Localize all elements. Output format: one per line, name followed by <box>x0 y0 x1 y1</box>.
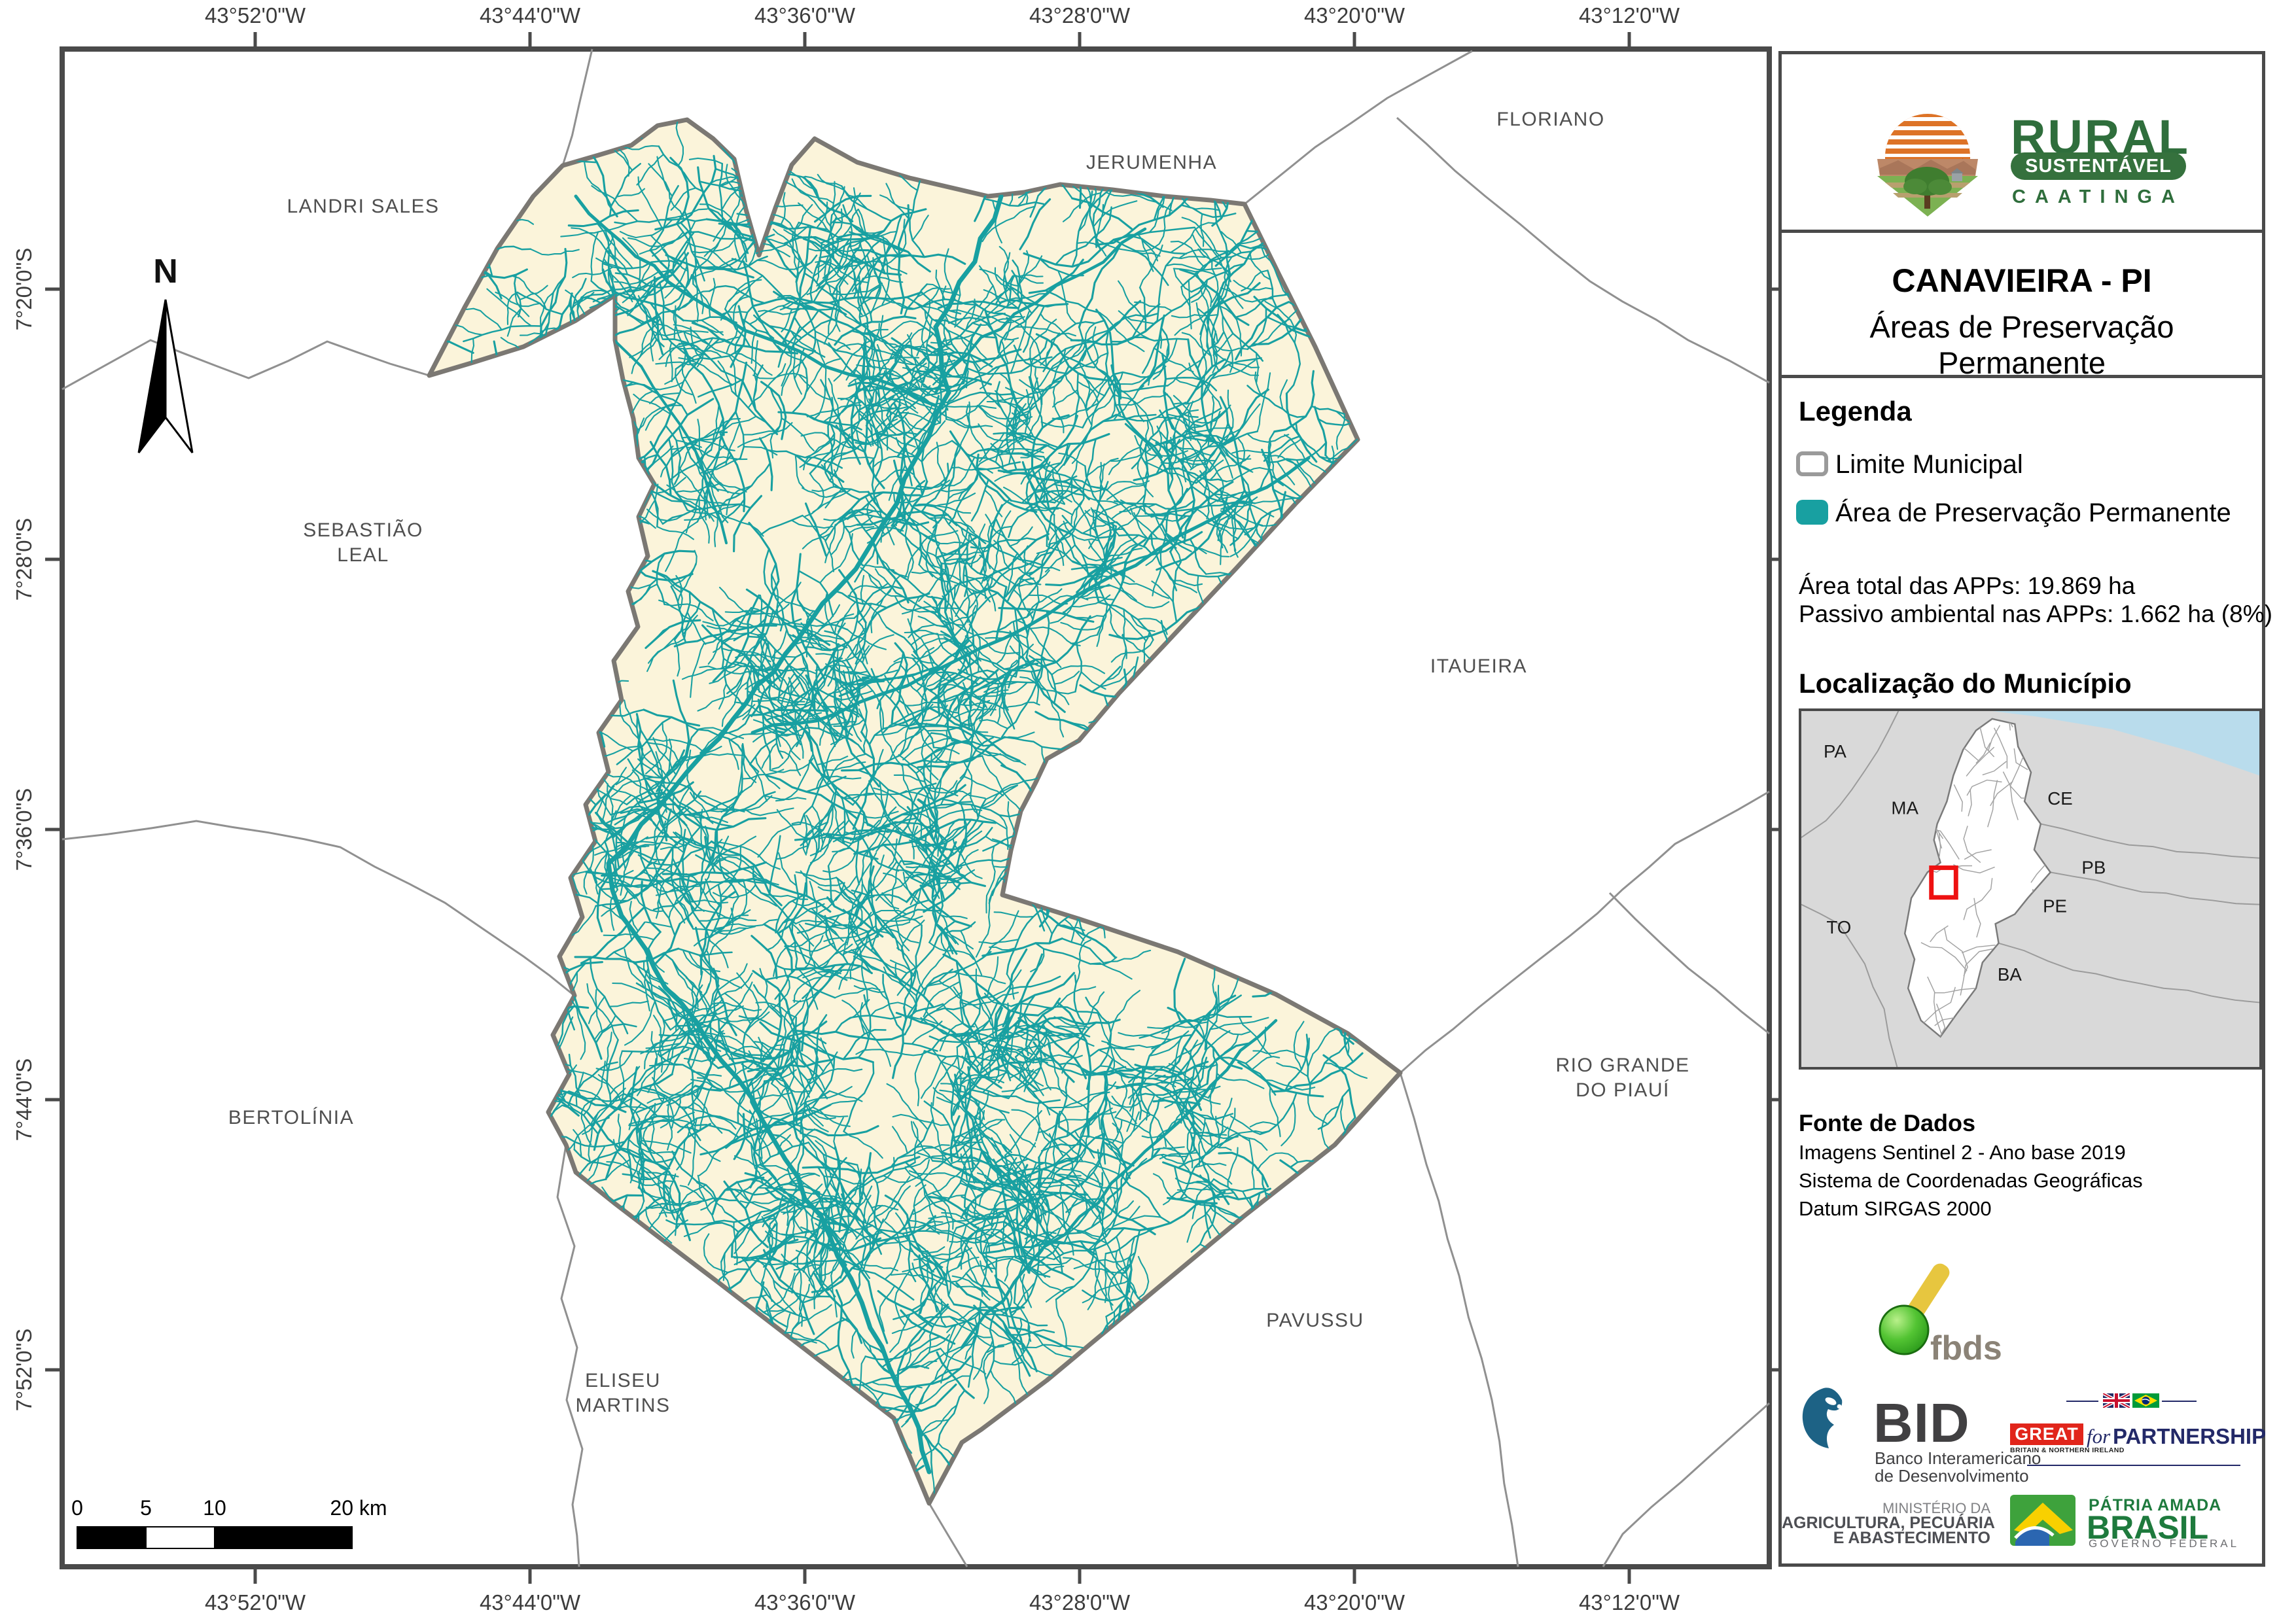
lon-tick-label: 43°36'0"W <box>754 1590 856 1614</box>
inset-state-label: BA <box>1998 964 2022 985</box>
lat-tick-label: 7°28'0"S <box>12 518 36 601</box>
location-inset-svg: PAMACEPBPEBATO <box>1801 711 2259 1067</box>
great-for-text: for <box>2087 1425 2110 1448</box>
inset-state-label: CE <box>2047 788 2072 809</box>
title-box: CANAVIEIRA - PI Áreas de Preservação Per… <box>1778 230 2265 378</box>
lat-tick-label: 7°20'0"S <box>12 248 36 331</box>
location-inset-map: PAMACEPBPEBATO <box>1799 708 2262 1070</box>
logo-subtitle-pill: SUSTENTÁVEL <box>2011 152 2186 180</box>
lon-tick-label: 43°12'0"W <box>1579 3 1680 27</box>
inset-state-label: TO <box>1826 917 1851 937</box>
lon-tick-label: 43°20'0"W <box>1304 3 1405 27</box>
bid-tagline: de Desenvolvimento <box>1875 1466 2029 1486</box>
legend-swatch-app <box>1796 500 1828 525</box>
great-flag-rule-left <box>2066 1401 2098 1402</box>
scale-bar-label: 10 <box>203 1496 226 1520</box>
scale-bar-label: 20 km <box>330 1496 387 1520</box>
great-flag-rule-right <box>2162 1401 2197 1402</box>
lon-tick-label: 43°28'0"W <box>1029 3 1131 27</box>
legend-heading: Legenda <box>1799 396 1912 427</box>
logo-tagline: CAATINGA <box>2012 186 2184 208</box>
lon-tick-label: 43°44'0"W <box>480 1590 581 1614</box>
stat-passivo-app: Passivo ambiental nas APPs: 1.662 ha (8%… <box>1799 601 2272 628</box>
data-source-heading: Fonte de Dados <box>1799 1109 1975 1137</box>
ministry-block: MINISTÉRIO DA AGRICULTURA, PECUÁRIA E AB… <box>1782 1501 1990 1546</box>
fbds-logo: fbds <box>1860 1255 2057 1386</box>
great-campaign-logo: GREAT <box>2010 1423 2083 1445</box>
gov-line3: GOVERNO FEDERAL <box>2089 1537 2239 1550</box>
legend-label-app: Área de Preservação Permanente <box>1835 500 2231 525</box>
lon-tick-label: 43°52'0"W <box>205 3 306 27</box>
inset-state-label: MA <box>1891 798 1918 818</box>
great-underline <box>2027 1465 2240 1466</box>
page-subtitle: Áreas de Preservação Permanente <box>1782 309 2262 381</box>
bid-wordmark: BID <box>1873 1391 1970 1455</box>
inset-state-label: PA <box>1824 741 1846 761</box>
page-title: CANAVIEIRA - PI <box>1782 262 2262 300</box>
stat-total-app: Área total das APPs: 19.869 ha <box>1799 572 2135 600</box>
lat-tick-label: 7°36'0"S <box>12 788 36 871</box>
scale-bar-label: 5 <box>140 1496 152 1520</box>
location-heading: Localização do Município <box>1799 668 2132 699</box>
ministry-line: E ABASTECIMENTO <box>1782 1531 1990 1546</box>
inset-state-label: PE <box>2043 896 2067 916</box>
inset-state-label: PB <box>2081 857 2106 877</box>
scale-bar-label: 0 <box>71 1496 83 1520</box>
brazil-government-logo-icon <box>2010 1495 2075 1546</box>
neighbor-label: JERUMENHA <box>1086 152 1217 173</box>
fbds-wordmark: fbds <box>1930 1329 2002 1367</box>
partnership-wordmark: PARTNERSHIP <box>2113 1424 2266 1449</box>
lon-tick-label: 43°44'0"W <box>480 3 581 27</box>
data-source-line: Sistema de Coordenadas Geográficas <box>1799 1169 2143 1193</box>
bid-logo-icon <box>1800 1387 1865 1450</box>
north-arrow-label: N <box>153 253 178 290</box>
lat-tick-label: 7°52'0"S <box>12 1329 36 1412</box>
lat-tick-label: 7°44'0"S <box>12 1058 36 1142</box>
map-document-page: LANDRI SALESJERUMENHAFLORIANOSEBASTIÃOLE… <box>0 0 2296 1623</box>
data-source-line: Datum SIRGAS 2000 <box>1799 1197 1992 1221</box>
rural-sustentavel-caatinga-logo-icon <box>1859 96 1996 218</box>
data-source-line: Imagens Sentinel 2 - Ano base 2019 <box>1799 1141 2126 1164</box>
neighbor-label: LANDRI SALES <box>287 196 439 217</box>
legend-swatch-municipal-limit <box>1796 451 1828 476</box>
lon-tick-label: 43°20'0"W <box>1304 1590 1405 1614</box>
lon-tick-label: 43°28'0"W <box>1029 1590 1131 1614</box>
neighbor-label: PAVUSSU <box>1266 1310 1364 1331</box>
neighbor-label: FLORIANO <box>1496 109 1604 130</box>
neighbor-label: BERTOLÍNIA <box>228 1107 354 1128</box>
lon-tick-label: 43°36'0"W <box>754 3 856 27</box>
lon-tick-label: 43°12'0"W <box>1579 1590 1680 1614</box>
lon-tick-label: 43°52'0"W <box>205 1590 306 1614</box>
neighbor-label: ITAUEIRA <box>1430 655 1527 677</box>
uk-flag-icon <box>2103 1393 2130 1408</box>
info-box: Legenda Limite Municipal Área de Preserv… <box>1778 375 2265 1567</box>
legend-label-municipal-limit: Limite Municipal <box>1835 451 2023 476</box>
program-logo-box: RURAL SUSTENTÁVEL CAATINGA <box>1778 51 2265 233</box>
brazil-flag-icon <box>2132 1393 2159 1408</box>
